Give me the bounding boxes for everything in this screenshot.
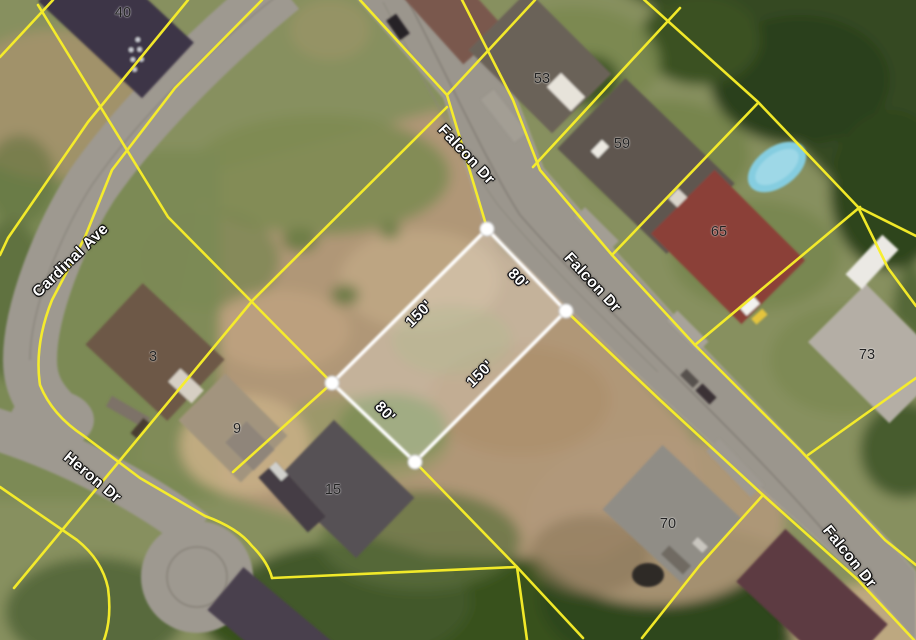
parcel-vertex-handle[interactable] <box>408 455 422 469</box>
parcel-vertex-handle[interactable] <box>325 376 339 390</box>
parcel-vertex-handle[interactable] <box>480 222 494 236</box>
map-canvas[interactable]: Falcon DrFalcon DrFalcon DrCardinal AveH… <box>0 0 916 640</box>
parcel-vertex-handle[interactable] <box>559 304 573 318</box>
aerial-imagery <box>0 0 916 640</box>
